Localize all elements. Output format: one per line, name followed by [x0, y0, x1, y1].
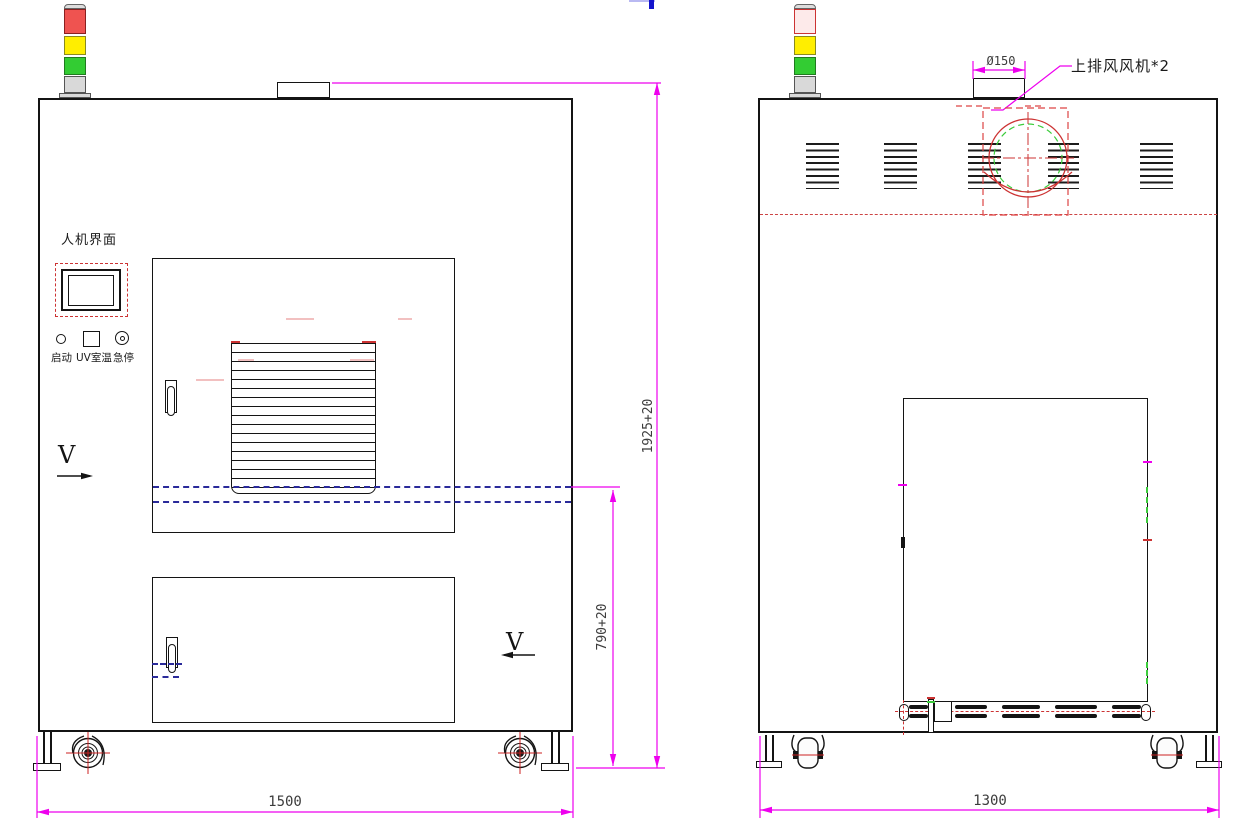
dim-1925 — [332, 83, 665, 768]
dim-790 — [571, 487, 620, 766]
cad-drawing-canvas: 人机界面 启动 UV室温 急停 V V 1500 1925+20 790+20 — [0, 0, 1238, 824]
dim-1300 — [760, 736, 1219, 818]
caster-wheel — [66, 732, 110, 774]
exhaust-fan — [956, 106, 1074, 216]
section-arrow-left — [57, 473, 93, 479]
section-arrow-right — [501, 652, 535, 658]
caster-wheel — [792, 735, 824, 768]
annotation-overlay — [0, 0, 1238, 824]
caster-wheel — [1151, 735, 1183, 768]
dim-1500 — [37, 736, 573, 818]
fan-callout-leader — [991, 66, 1072, 110]
dim-150 — [973, 61, 1025, 79]
caster-wheel — [498, 732, 542, 774]
